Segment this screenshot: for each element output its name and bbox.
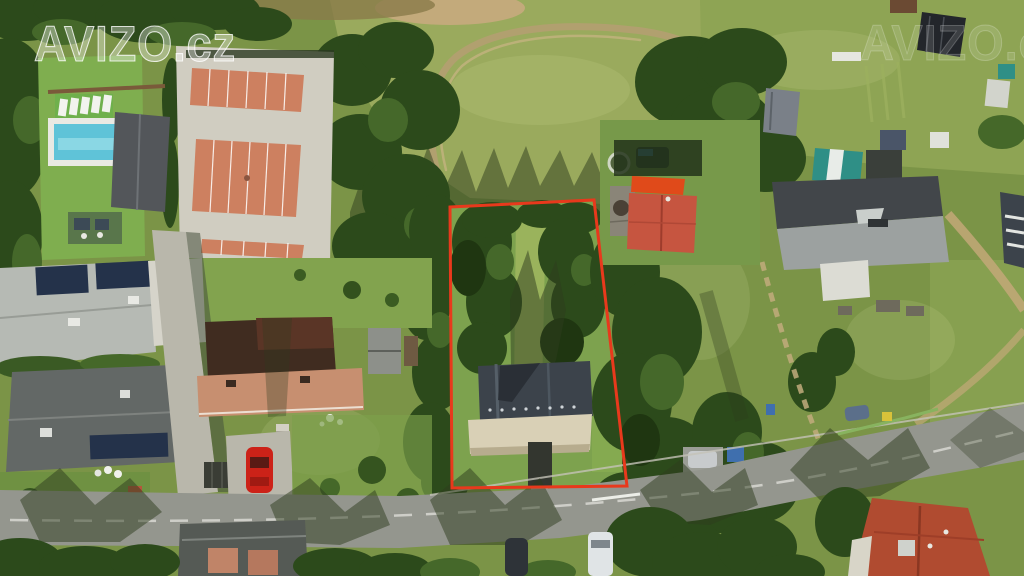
aerial-photo-canvas: AVIZO.cz AVIZO.cz <box>0 0 1024 576</box>
gray-tarp-structure <box>763 88 800 136</box>
court-fixture <box>244 175 250 181</box>
woodpile <box>404 336 418 366</box>
red-car <box>246 447 273 493</box>
white-van <box>588 532 613 576</box>
solar-panels-lower <box>90 433 169 460</box>
red-roof-homestead <box>600 120 760 265</box>
white-tarp <box>820 260 870 301</box>
white-shed <box>985 79 1011 108</box>
bottom-house-salmon-2 <box>248 550 278 575</box>
yellow-object <box>882 412 892 421</box>
white-box <box>930 132 949 148</box>
brown-shed-roof <box>890 0 917 13</box>
aerial-photo: AVIZO.cz AVIZO.cz <box>0 0 1024 576</box>
white-bench <box>832 52 861 61</box>
dark-roofline <box>614 140 702 176</box>
blue-bin <box>766 404 775 415</box>
dormer <box>898 540 915 556</box>
pool-highlight <box>58 138 114 150</box>
annex-arch <box>613 200 629 216</box>
roof-window <box>68 318 80 326</box>
watermark-avizo: AVIZO.cz <box>34 16 236 72</box>
blue-shed <box>880 130 906 150</box>
patio-furniture <box>68 212 122 244</box>
watermark-avizo-partial: AVIZO.cz <box>860 15 1024 71</box>
bottom-house-roof <box>178 520 308 576</box>
tennis-courts <box>176 46 334 264</box>
bottom-house-salmon-1 <box>208 548 238 573</box>
roof-window <box>128 296 139 304</box>
bush <box>978 115 1024 149</box>
orange-roof-section <box>631 176 685 195</box>
parked-car-dark <box>505 538 528 576</box>
